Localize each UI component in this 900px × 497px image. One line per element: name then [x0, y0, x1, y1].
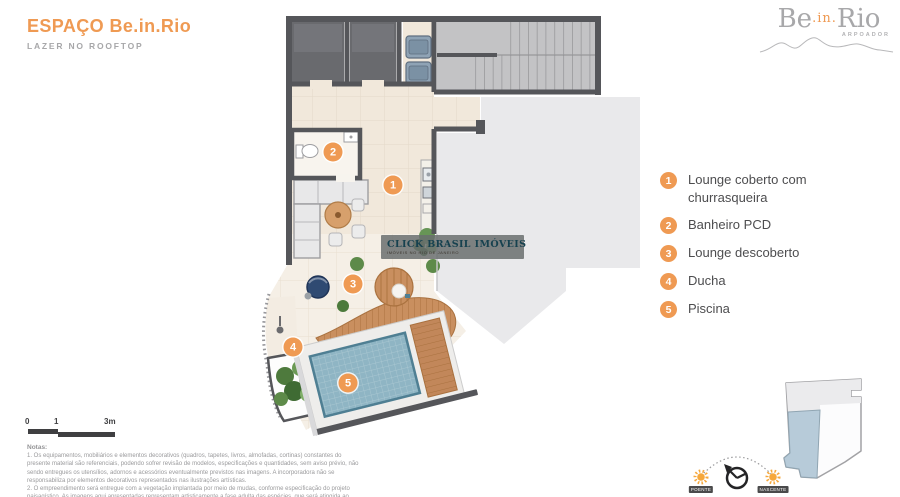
- corridor-wall-stub: [476, 120, 485, 134]
- legend-item: 2 Banheiro PCD: [660, 216, 855, 234]
- plan-marker-1: 1: [384, 176, 403, 195]
- scale-label-3m: 3m: [104, 417, 116, 426]
- elevator-shafts: [292, 22, 396, 84]
- scale-bar: [28, 429, 115, 437]
- plan-marker-2: 2: [324, 143, 343, 162]
- legend: 1 Lounge coberto com churrasqueira 2 Ban…: [660, 171, 855, 318]
- watermark-tagline: IMÓVEIS NO RIO DE JANEIRO: [387, 251, 526, 255]
- key-plan: [784, 379, 861, 478]
- bathroom-door-gap: [336, 174, 355, 182]
- legend-label-4: Ducha: [688, 272, 726, 290]
- sun-east-label: NASCENTE: [758, 486, 789, 493]
- legend-item: 3 Lounge descoberto: [660, 244, 855, 262]
- notes-item-1: 1. Os equipamentos, mobiliários e elemen…: [27, 452, 365, 485]
- legend-badge-5: 5: [660, 301, 677, 318]
- legend-badge-3: 3: [660, 245, 677, 262]
- notes-item-2: 2. O empreendimento será entregue com a …: [27, 485, 365, 497]
- scale-label-1: 1: [54, 417, 58, 426]
- page-subtitle: LAZER NO ROOFTOP: [27, 41, 191, 51]
- watermark-title: CLICK BRASIL IMÓVEIS: [387, 240, 526, 250]
- watermark: CLICK BRASIL IMÓVEIS IMÓVEIS NO RIO DE J…: [381, 235, 524, 259]
- brand-logo-text: Be.in.Rio: [762, 6, 896, 32]
- elevator-door: [362, 80, 384, 89]
- notes-heading: Notas:: [27, 444, 365, 451]
- legend-badge-2: 2: [660, 217, 677, 234]
- mountain-silhouette: [760, 38, 893, 52]
- north-arrow-icon: [724, 464, 747, 488]
- legend-item: 4 Ducha: [660, 272, 855, 290]
- plan-marker-3: 3: [344, 275, 363, 294]
- scale-label-0: 0: [25, 417, 29, 426]
- watermark-text: CLICK BRASIL IMÓVEIS IMÓVEIS NO RIO DE J…: [387, 240, 526, 255]
- legend-label-5: Piscina: [688, 300, 730, 318]
- sun-path-diagram: [695, 457, 779, 488]
- round-deck-table: [375, 268, 413, 306]
- legend-item: 5 Piscina: [660, 300, 855, 318]
- page-title: ESPAÇO Be.in.Rio: [27, 16, 191, 37]
- legend-label-1: Lounge coberto com churrasqueira: [688, 171, 855, 206]
- legend-item: 1 Lounge coberto com churrasqueira: [660, 171, 855, 206]
- legend-label-2: Banheiro PCD: [688, 216, 771, 234]
- sun-east-icon: [767, 471, 779, 483]
- sun-west-icon: [695, 471, 707, 483]
- notes: Notas: 1. Os equipamentos, mobiliários e…: [27, 444, 365, 497]
- legend-label-3: Lounge descoberto: [688, 244, 799, 262]
- sun-west-label: POENTE: [689, 486, 713, 493]
- plan-marker-5: 5: [339, 374, 358, 393]
- legend-badge-1: 1: [660, 172, 677, 189]
- roof-slab: [437, 97, 640, 344]
- legend-badge-4: 4: [660, 273, 677, 290]
- title-block: ESPAÇO Be.in.Rio LAZER NO ROOFTOP: [27, 16, 191, 51]
- elevator-door: [310, 80, 332, 89]
- key-plan-highlight: [784, 410, 820, 478]
- stairwell: [437, 19, 596, 91]
- plan-marker-4: 4: [284, 338, 303, 357]
- brand-logo: Be.in.Rio ARPOADOR: [762, 6, 896, 38]
- floorplan-page: ESPAÇO Be.in.Rio LAZER NO ROOFTOP Be.in.…: [0, 0, 900, 497]
